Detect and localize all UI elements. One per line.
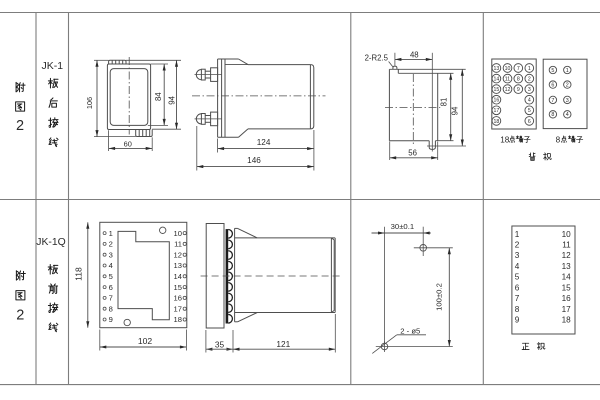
svg-text:16: 16 (174, 294, 182, 303)
svg-text:1: 1 (528, 66, 531, 72)
svg-text:17: 17 (494, 108, 500, 114)
svg-text:13: 13 (174, 261, 182, 270)
svg-text:18: 18 (562, 315, 572, 324)
svg-text:18: 18 (174, 315, 182, 324)
svg-text:124: 124 (257, 138, 271, 147)
svg-text:84: 84 (154, 92, 163, 101)
svg-text:56: 56 (408, 148, 417, 157)
svg-text:16: 16 (494, 98, 500, 104)
svg-text:11: 11 (174, 240, 182, 249)
svg-text:2: 2 (16, 118, 24, 134)
svg-text:11: 11 (562, 241, 571, 250)
svg-text:15: 15 (562, 283, 572, 292)
svg-text:2: 2 (109, 240, 113, 249)
svg-text:10: 10 (562, 230, 572, 239)
svg-text:3: 3 (528, 87, 531, 93)
svg-text:18: 18 (500, 136, 510, 145)
svg-text:100±0.2: 100±0.2 (435, 283, 444, 311)
svg-text:30±0.1: 30±0.1 (391, 222, 414, 231)
svg-text:2: 2 (566, 83, 569, 89)
svg-text:4: 4 (109, 261, 113, 270)
svg-text:3: 3 (109, 250, 113, 259)
svg-text:13: 13 (494, 66, 500, 72)
svg-text:9: 9 (109, 315, 113, 324)
svg-text:2 - ø5: 2 - ø5 (400, 326, 420, 335)
svg-text:8: 8 (515, 305, 520, 314)
svg-text:7: 7 (109, 294, 113, 303)
svg-text:1: 1 (109, 229, 113, 238)
svg-text:102: 102 (138, 336, 153, 346)
svg-text:16: 16 (562, 294, 572, 303)
svg-text:3: 3 (515, 251, 520, 260)
svg-text:18: 18 (494, 119, 500, 125)
svg-text:8: 8 (556, 136, 561, 145)
svg-text:5: 5 (551, 68, 554, 74)
svg-text:5: 5 (109, 272, 113, 281)
svg-text:12: 12 (505, 87, 511, 93)
svg-text:6: 6 (551, 83, 554, 89)
svg-text:81: 81 (439, 98, 448, 107)
svg-text:6: 6 (515, 283, 520, 292)
svg-text:JK-1Q: JK-1Q (36, 237, 65, 248)
svg-text:10: 10 (174, 229, 182, 238)
svg-text:15: 15 (494, 87, 500, 93)
svg-text:14: 14 (494, 77, 500, 83)
svg-text:14: 14 (562, 273, 572, 282)
svg-text:6: 6 (528, 119, 531, 125)
svg-text:4: 4 (515, 262, 520, 271)
svg-text:17: 17 (562, 305, 572, 314)
svg-text:4: 4 (566, 112, 569, 118)
svg-text:146: 146 (247, 156, 261, 165)
svg-text:1: 1 (566, 68, 569, 74)
svg-text:13: 13 (562, 262, 572, 271)
svg-text:35: 35 (215, 339, 225, 349)
svg-text:8: 8 (517, 77, 520, 83)
svg-text:10: 10 (505, 66, 511, 72)
svg-text:48: 48 (410, 50, 419, 59)
svg-text:94: 94 (451, 106, 460, 115)
svg-text:4: 4 (528, 98, 531, 104)
svg-text:12: 12 (174, 250, 182, 259)
svg-text:2: 2 (528, 77, 531, 83)
svg-text:12: 12 (562, 251, 572, 260)
svg-text:94: 94 (167, 95, 176, 104)
svg-text:9: 9 (517, 87, 520, 93)
svg-text:15: 15 (174, 283, 182, 292)
svg-text:8: 8 (109, 304, 113, 313)
svg-text:1: 1 (515, 230, 520, 239)
svg-text:5: 5 (528, 108, 531, 114)
svg-text:11: 11 (505, 77, 510, 83)
svg-text:5: 5 (515, 273, 520, 282)
svg-text:14: 14 (174, 272, 182, 281)
svg-text:9: 9 (515, 315, 520, 324)
svg-text:118: 118 (74, 267, 84, 281)
svg-text:2: 2 (16, 308, 24, 324)
svg-text:121: 121 (276, 339, 290, 349)
svg-text:17: 17 (174, 304, 182, 313)
svg-text:7: 7 (551, 98, 554, 104)
svg-text:6: 6 (109, 283, 113, 292)
svg-text:JK-1: JK-1 (42, 60, 64, 72)
svg-text:2: 2 (515, 241, 520, 250)
svg-text:2-R2.5: 2-R2.5 (365, 53, 389, 62)
svg-text:3: 3 (566, 98, 569, 104)
svg-text:7: 7 (515, 294, 520, 303)
svg-text:106: 106 (85, 97, 94, 109)
svg-text:8: 8 (551, 112, 554, 118)
svg-text:60: 60 (124, 139, 132, 148)
svg-text:7: 7 (517, 66, 520, 72)
